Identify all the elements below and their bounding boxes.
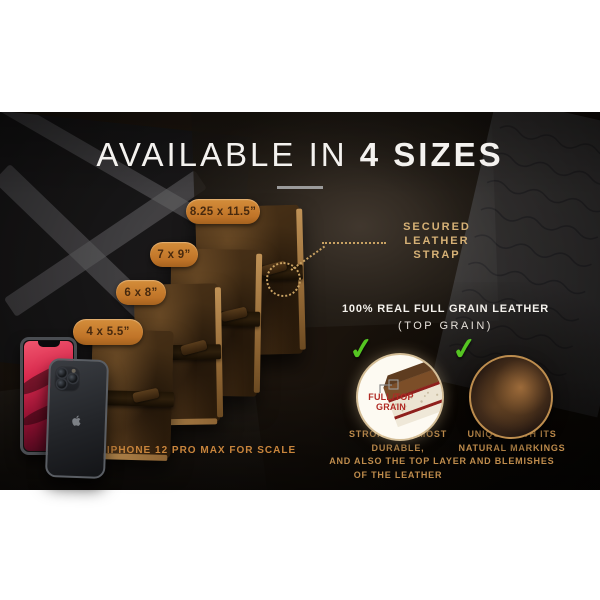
apple-logo-icon	[71, 414, 83, 428]
camera-lens-icon	[68, 374, 77, 383]
product-infographic: AVAILABLE IN 4 SIZES SECURED LEATHER STR…	[0, 0, 600, 600]
size-badge-6x8: 6 x 8”	[116, 280, 166, 305]
full-top-grain-label: FULL/TOP GRAIN	[361, 392, 421, 412]
iphone-back-view	[45, 358, 109, 479]
camera-lens-icon	[57, 379, 66, 388]
size-badge-4x5-5: 4 x 5.5”	[73, 319, 143, 345]
title-bold-part: 4 SIZES	[360, 136, 504, 173]
callout-leader-line	[322, 242, 386, 244]
camera-flash-icon	[72, 369, 76, 373]
checkmark-icon: ✓	[450, 331, 479, 368]
camera-module	[54, 365, 81, 392]
strap-callout-label: SECURED LEATHER STRAP	[382, 220, 492, 262]
leather-subheading: (TOP GRAIN)	[328, 320, 563, 332]
size-badge-8-25x11-5: 8.25 x 11.5”	[186, 199, 260, 224]
leather-texture-circle	[469, 355, 553, 439]
title-light-part: AVAILABLE IN	[96, 136, 347, 173]
checkmark-icon: ✓	[347, 331, 376, 368]
camera-lens-icon	[57, 368, 66, 377]
leather-cross-section-circle: FULL/TOP GRAIN	[358, 355, 442, 439]
size-badge-7x9: 7 x 9”	[150, 242, 198, 267]
iphone-notch	[38, 341, 60, 347]
page-title: AVAILABLE IN 4 SIZES	[0, 136, 600, 174]
leather-heading: 100% REAL FULL GRAIN LEATHER	[328, 303, 563, 315]
iphone-scale-note: *IPHONE 12 PRO MAX FOR SCALE	[102, 445, 296, 456]
title-underline	[277, 186, 323, 189]
